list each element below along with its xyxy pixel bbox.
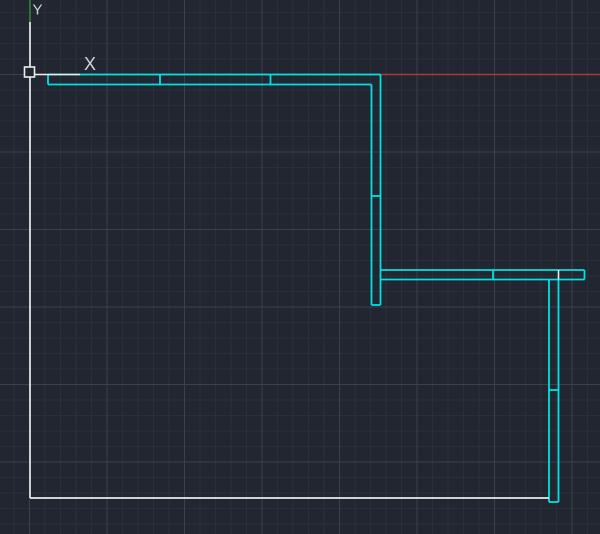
cad-model-space-viewport: Y X [0, 0, 600, 534]
x-axis-label: X [84, 55, 96, 73]
y-axis-label: Y [32, 3, 42, 18]
ucs-origin-box[interactable] [25, 67, 35, 77]
grid-minor-lines [0, 0, 600, 534]
drawing-canvas[interactable] [0, 0, 600, 534]
